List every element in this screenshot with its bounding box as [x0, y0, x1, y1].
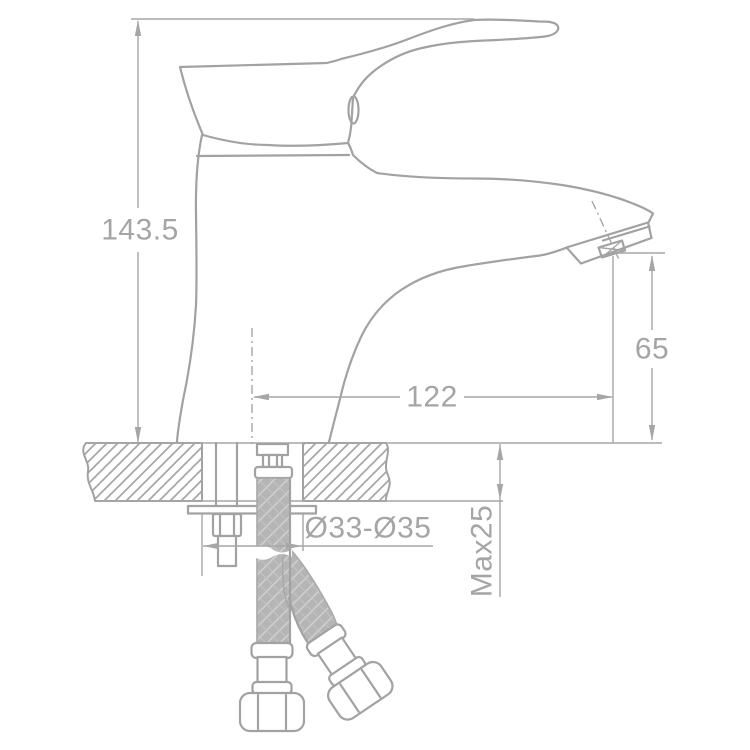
arrowhead-down [135, 427, 141, 443]
dim-max-deck-thickness: Max25 [466, 444, 504, 597]
hose-connector [255, 444, 292, 478]
dim-label-max-deck-thickness: Max25 [466, 505, 499, 598]
arrowhead-up [135, 20, 141, 36]
aerator [567, 201, 652, 264]
hex-nut [240, 693, 304, 731]
arrowhead-down [497, 484, 503, 500]
body-left-edge [177, 135, 202, 442]
fitting-sleeve [258, 657, 287, 683]
ferrule-band [252, 643, 293, 658]
vertical-hose-end-fitting [240, 643, 304, 731]
stud-lower-end [218, 536, 236, 566]
arrowhead-up [649, 255, 655, 271]
spout-top-edge [348, 143, 653, 214]
dim-total-height: 143.5 [101, 20, 179, 443]
dim-outlet-height: 65 [635, 255, 669, 441]
hose-ferrule-collar [255, 467, 292, 478]
dim-spout-reach: 122 [253, 381, 613, 414]
arrowhead-right [597, 394, 613, 400]
arrowhead-right [286, 543, 302, 549]
handle-and-lever [180, 20, 558, 146]
dim-label-mounting-hole-diameter: Ø33-Ø35 [305, 512, 432, 545]
mounting-hardware [188, 443, 316, 566]
arrowhead-left [253, 394, 269, 400]
threaded-stud [216, 443, 237, 506]
arrowhead-up [497, 444, 503, 460]
dim-label-outlet-height: 65 [635, 333, 669, 366]
mounting-deck [83, 443, 662, 501]
faucet-body [177, 20, 653, 442]
arrowhead-down [649, 425, 655, 441]
base-flange-washer [188, 506, 316, 514]
arrowhead-left [203, 543, 219, 549]
hose-connector-top [257, 444, 288, 455]
dim-label-spout-reach: 122 [406, 381, 458, 414]
hose-nipple [263, 455, 282, 467]
deck-left-section [83, 443, 202, 501]
deck-right-section [303, 443, 390, 501]
body-seam-line [197, 155, 349, 156]
faucet-technical-drawing: 143.5 122 65 Max25 Ø33-Ø35 [0, 0, 750, 750]
technical-drawing-canvas: 143.5 122 65 Max25 Ø33-Ø35 [0, 0, 750, 750]
mounting-nut [213, 514, 241, 536]
dim-label-total-height: 143.5 [101, 214, 179, 247]
